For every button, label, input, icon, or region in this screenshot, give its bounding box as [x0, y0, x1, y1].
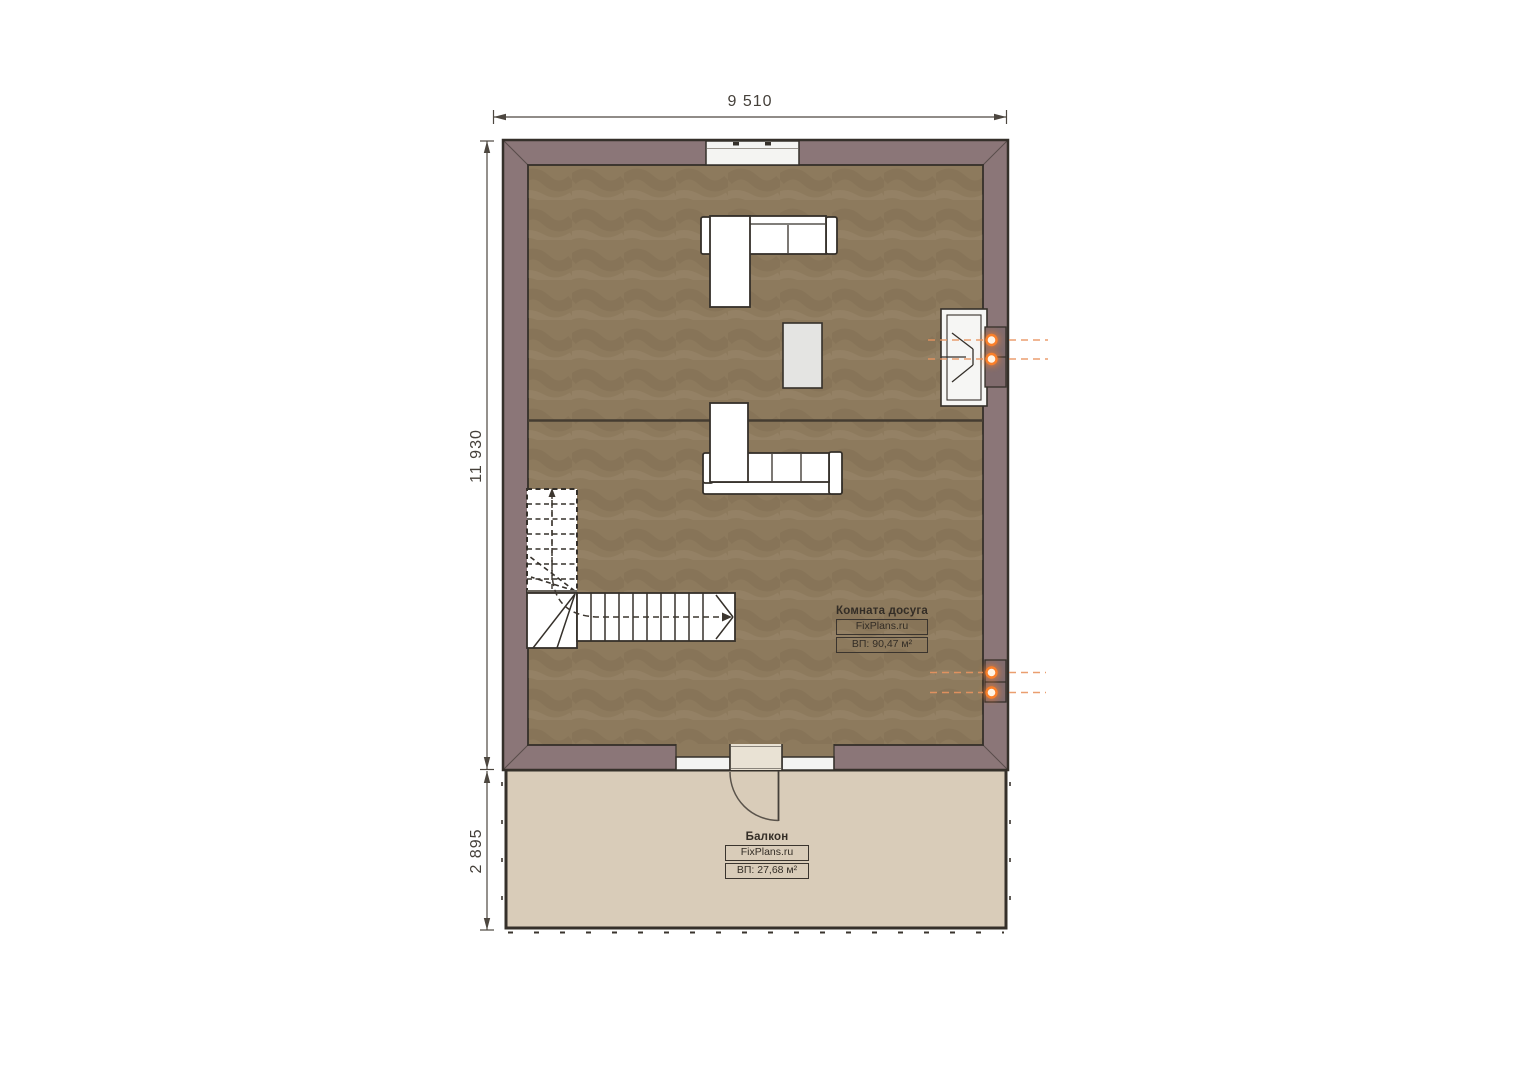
flue-outlet-icon	[987, 688, 997, 698]
flue-outlet-icon	[987, 354, 997, 364]
floor-plan-drawing	[0, 0, 1528, 1080]
leisure-room-label: Комната досуга FixPlans.ru ВП: 90,47 м²	[836, 605, 928, 653]
area-box: ВП: 90,47 м²	[836, 637, 928, 653]
dimension-top-label: 9 510	[700, 93, 800, 111]
balcony-label: Балкон FixPlans.ru ВП: 27,68 м²	[725, 831, 809, 879]
dimension-left-balcony-label: 2 895	[468, 801, 486, 901]
dimension-top	[494, 110, 1007, 124]
flue-outlet-icon	[987, 335, 997, 345]
floor-plan-page: 9 510 11 930 2 895 Комната досуга FixPla…	[0, 0, 1528, 1080]
room-name: Комната досуга	[836, 605, 928, 617]
flue-outlet-icon	[987, 668, 997, 678]
room-name: Балкон	[725, 831, 809, 843]
watermark-box: FixPlans.ru	[836, 619, 928, 635]
dimension-left-main-label: 11 930	[468, 406, 486, 506]
window-top	[706, 141, 799, 165]
area-box: ВП: 27,68 м²	[725, 863, 809, 879]
watermark-box: FixPlans.ru	[725, 845, 809, 861]
coffee-table	[783, 323, 822, 388]
